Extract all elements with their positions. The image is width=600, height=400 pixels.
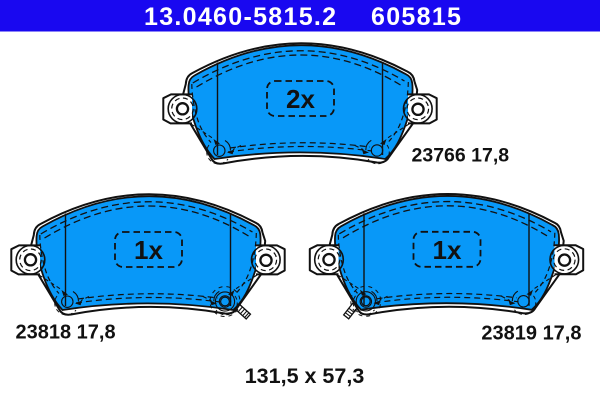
svg-text:2x: 2x — [286, 84, 315, 114]
svg-text:1x: 1x — [433, 235, 462, 265]
svg-text:1x: 1x — [134, 235, 163, 265]
svg-text:23818 17,8: 23818 17,8 — [16, 322, 116, 344]
svg-text:131,5 x 57,3: 131,5 x 57,3 — [245, 364, 365, 388]
svg-text:13.0460-5815.2: 13.0460-5815.2 — [144, 3, 337, 31]
svg-text:605815: 605815 — [371, 3, 462, 31]
svg-text:23819 17,8: 23819 17,8 — [481, 323, 581, 345]
svg-text:23766 17,8: 23766 17,8 — [412, 145, 510, 167]
